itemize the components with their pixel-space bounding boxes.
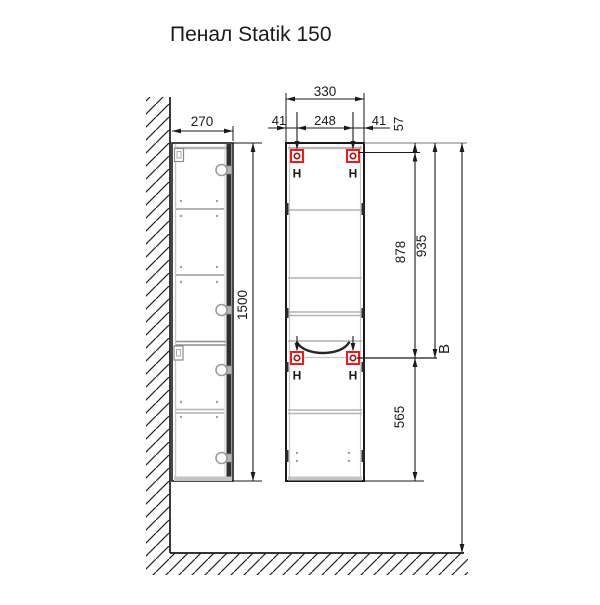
hanger-hole-icon xyxy=(350,153,355,158)
side-height-dimension: 1500 xyxy=(235,290,250,320)
hanger-hole-icon xyxy=(294,355,299,360)
drawing-title: Пенал Statik 150 xyxy=(170,23,332,46)
hanger-hole-icon xyxy=(350,355,355,360)
mounting-height-label: B xyxy=(436,344,453,354)
left-hanger-offset-dimension: 41 xyxy=(272,113,286,128)
hanger-span-dimension: 878 xyxy=(393,241,408,264)
lower-section-dimension: 565 xyxy=(392,406,407,429)
front-width-dimension: 330 xyxy=(314,84,337,99)
wall-hatch xyxy=(146,97,170,553)
hanger-label-mid-right: H xyxy=(349,369,358,383)
technical-drawing: Пенал Statik 150 xyxy=(0,0,600,600)
hanger-hole-icon xyxy=(294,153,299,158)
side-width-dimension: 270 xyxy=(191,114,214,129)
hanger-spacing-dimension: 248 xyxy=(314,113,336,128)
top-to-lower-hanger-dimension: 935 xyxy=(414,235,429,258)
floor-hatch xyxy=(146,553,468,575)
hanger-top-drop-dimension: 57 xyxy=(391,117,406,131)
right-hanger-offset-dimension: 41 xyxy=(372,113,386,128)
hanger-label-top-right: H xyxy=(349,167,358,181)
hanger-label-mid-left: H xyxy=(293,369,302,383)
hanger-label-top-left: H xyxy=(293,167,302,181)
